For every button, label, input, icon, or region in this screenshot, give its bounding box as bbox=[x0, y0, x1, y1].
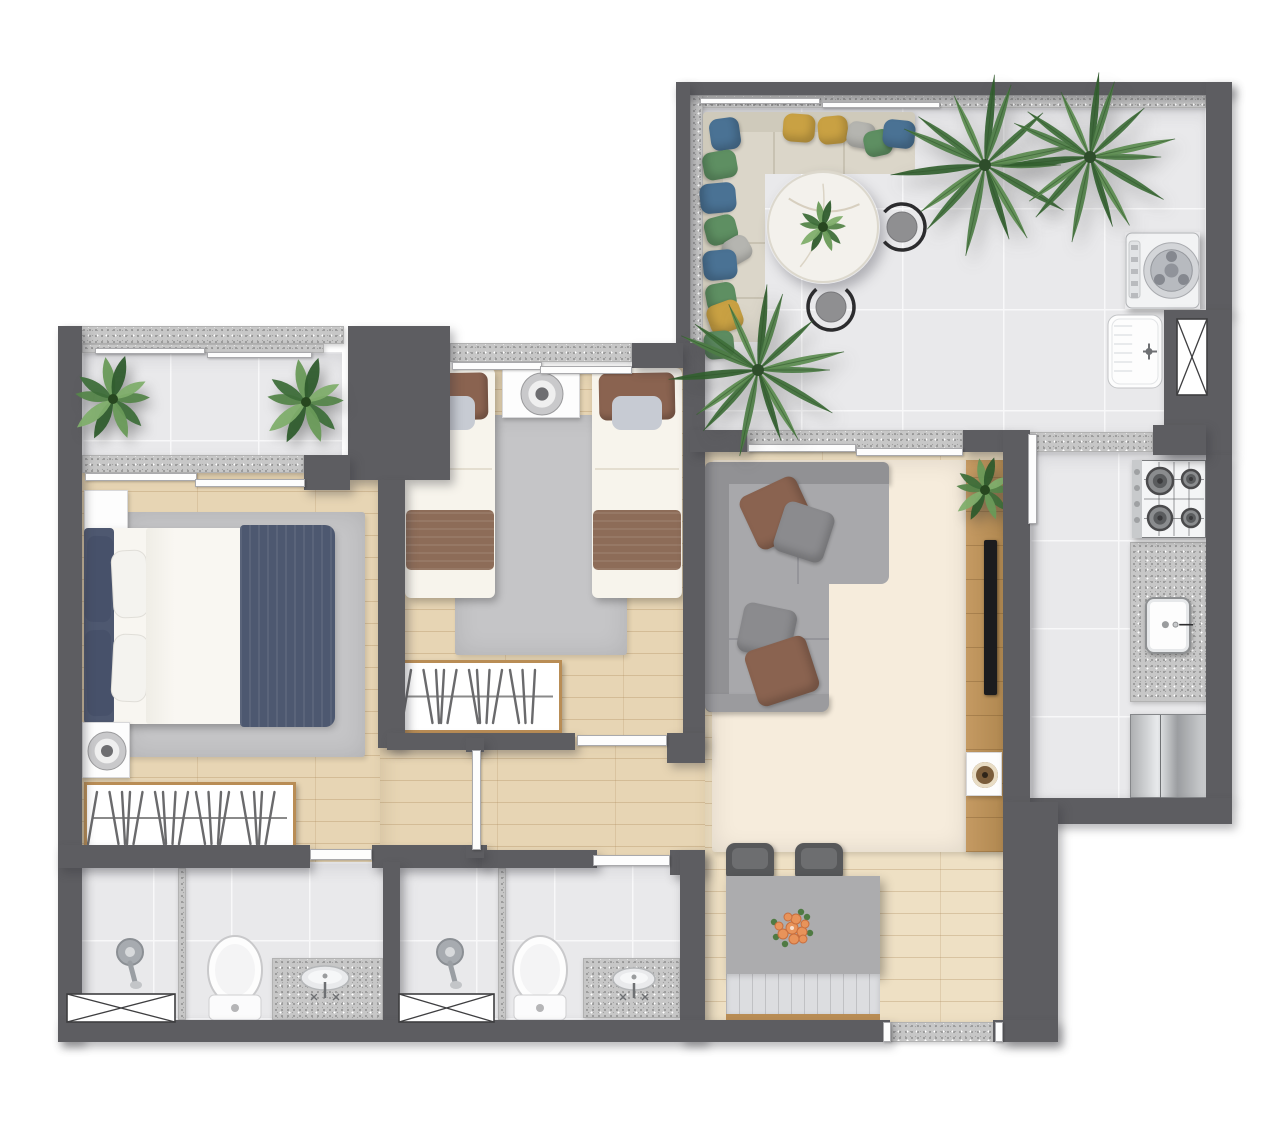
kitchen-door-wall bbox=[1153, 425, 1206, 455]
master-sheet bbox=[146, 528, 242, 724]
washing-machine-part-part bbox=[1131, 281, 1138, 286]
sink-2 bbox=[608, 964, 660, 1002]
hallway-floor bbox=[380, 737, 705, 862]
dining-chair-2-cushion bbox=[801, 848, 837, 869]
laundry-tub bbox=[1107, 314, 1163, 389]
dining-flowers-part-part-part bbox=[778, 929, 788, 939]
master-wardrobe-hangers bbox=[87, 785, 293, 851]
twin-wall-bottom-corner bbox=[667, 733, 705, 763]
terrace-wall-right bbox=[1206, 82, 1232, 314]
sink-1-part-part bbox=[323, 974, 328, 979]
shower-1-part-part bbox=[130, 963, 135, 982]
shaft-xbox-part bbox=[1176, 318, 1208, 396]
master-pillow-white-1 bbox=[110, 549, 150, 619]
twin-wardrobe-hangers-part-part bbox=[532, 670, 535, 723]
stove-part bbox=[1132, 460, 1206, 538]
twin-bed-2-blanket bbox=[593, 510, 681, 570]
master-wardrobe-hangers-part-part bbox=[127, 792, 130, 844]
balcony-window-2 bbox=[195, 479, 305, 487]
sink-1-part bbox=[296, 962, 354, 1002]
balcony-plant-left bbox=[68, 353, 158, 445]
kitchen-wall-bottom bbox=[1030, 798, 1232, 824]
bottom-wall bbox=[58, 1020, 890, 1042]
terrace-palm-1-part-part-part bbox=[979, 159, 991, 171]
master-window-wall bbox=[304, 455, 350, 490]
stove-part-part bbox=[1157, 515, 1162, 520]
master-pillow-white-2 bbox=[110, 633, 150, 703]
master-pillow-navy-1 bbox=[85, 536, 114, 623]
table-centerpiece-plant-part-part-part bbox=[818, 222, 828, 232]
bath2-xbox bbox=[398, 993, 495, 1023]
shower-2-part-part bbox=[450, 963, 455, 982]
shower-2 bbox=[433, 936, 467, 992]
dining-flowers-part-part-part bbox=[801, 920, 809, 928]
balcony-plant-right-part-part bbox=[265, 356, 344, 445]
terrace-palm-3-part bbox=[668, 280, 848, 460]
kitchen-door-threshold bbox=[1028, 432, 1153, 452]
sink-2-part-part bbox=[632, 975, 637, 980]
fan-dial-part-part bbox=[101, 745, 113, 757]
terrace-palm-3-part-part bbox=[668, 284, 845, 457]
dining-wall-right bbox=[1003, 802, 1058, 1042]
sofa-chaise-back bbox=[705, 462, 889, 484]
shower-1 bbox=[113, 936, 147, 992]
kitchen-sink bbox=[1145, 597, 1191, 654]
stove-part-part bbox=[1134, 517, 1140, 523]
dining-chair-1 bbox=[726, 843, 774, 878]
twin-nightstand bbox=[502, 368, 580, 418]
twin-bed-2-pillow-gray bbox=[612, 396, 662, 430]
dining-flowers-part-part-part bbox=[804, 914, 810, 920]
toilet-2 bbox=[509, 934, 571, 1022]
entry-threshold bbox=[890, 1022, 996, 1042]
kitchen-sink-part-part bbox=[1162, 621, 1169, 628]
toilet-2-part-part bbox=[520, 944, 560, 996]
bath-dining-wall bbox=[680, 850, 705, 1042]
shower-2-part bbox=[433, 936, 467, 992]
console-speaker bbox=[966, 752, 1002, 796]
twin-bed-2-sheet-line bbox=[595, 468, 679, 470]
dining-flowers-part-part-part bbox=[790, 926, 794, 930]
fridge bbox=[1130, 714, 1207, 798]
dining-flowers bbox=[760, 896, 824, 960]
master-fan bbox=[82, 722, 130, 778]
dining-bench bbox=[726, 974, 880, 1021]
twin-wardrobe-hangers-part-part bbox=[523, 670, 526, 723]
shower-1-part-part bbox=[125, 947, 135, 957]
floor-plan-canvas bbox=[0, 0, 1280, 1130]
master-wardrobe-hangers-part-part bbox=[173, 792, 176, 844]
twin-wardrobe-hangers bbox=[401, 663, 559, 730]
master-bed bbox=[84, 528, 332, 724]
terrace-pillow-8 bbox=[699, 181, 737, 214]
fan-dial-part bbox=[87, 731, 127, 771]
balcony-window-1 bbox=[85, 473, 197, 481]
washing-machine-part-part bbox=[1166, 251, 1177, 262]
fridge-seam bbox=[1160, 715, 1161, 799]
twin-wardrobe-hangers-part bbox=[401, 663, 559, 730]
sink-2-part bbox=[608, 964, 660, 1002]
toilet-1-part-part bbox=[215, 944, 255, 996]
twin-wardrobe-hangers-part-part bbox=[436, 670, 439, 723]
twin-nightstand-dial-part bbox=[520, 372, 564, 416]
washing-machine-part-part bbox=[1131, 269, 1138, 274]
tv bbox=[984, 540, 997, 695]
kitchen-door-leaf bbox=[1028, 434, 1037, 524]
terrace-palm-2-part-part bbox=[1001, 72, 1176, 243]
stove-part-part bbox=[1189, 516, 1193, 520]
master-wardrobe-hangers-part-part bbox=[122, 792, 125, 844]
master-pillow-navy-2 bbox=[85, 630, 114, 717]
master-wall-bottom bbox=[58, 845, 310, 868]
terrace-pillow-11 bbox=[702, 249, 738, 282]
stove bbox=[1132, 460, 1206, 538]
kitchen-wall-right bbox=[1206, 455, 1232, 800]
dining-flowers-part-part-part bbox=[782, 941, 788, 947]
sink-1 bbox=[296, 962, 354, 1002]
dining-chair-2 bbox=[795, 843, 843, 878]
master-wardrobe-hangers-part bbox=[87, 785, 293, 851]
terrace-pillow-1 bbox=[708, 116, 742, 152]
twin-window-2 bbox=[540, 366, 632, 374]
master-wardrobe bbox=[84, 782, 296, 854]
terrace-pillow-3 bbox=[817, 115, 849, 146]
terrace-palm-2-part-part-part bbox=[1084, 151, 1096, 163]
balcony-parapet bbox=[62, 326, 344, 344]
terrace-rail-1 bbox=[700, 98, 820, 104]
toilet-1-part bbox=[204, 934, 266, 1022]
twin-door-leaf bbox=[577, 735, 667, 746]
table-centerpiece-plant-part-part bbox=[798, 199, 846, 253]
balcony-wall-block bbox=[348, 326, 450, 480]
twin-wardrobe-hangers-part-part bbox=[441, 670, 444, 723]
dining-flowers-part-part-part bbox=[807, 930, 813, 936]
console-plant-part-part-part bbox=[980, 485, 990, 495]
table-centerpiece-plant-part bbox=[795, 199, 851, 255]
dining-flowers-part bbox=[760, 896, 824, 960]
bath1-xbox bbox=[66, 993, 176, 1023]
stove-part-part bbox=[1157, 478, 1163, 484]
laundry-tub-part bbox=[1107, 314, 1163, 389]
master-blanket bbox=[240, 525, 335, 727]
dining-chair-1-cushion bbox=[732, 848, 768, 869]
kitchen-sink-part bbox=[1147, 599, 1193, 656]
washing-machine-part-part bbox=[1131, 257, 1138, 262]
bath2-xbox-part bbox=[398, 993, 495, 1023]
toilet-2-part bbox=[509, 934, 571, 1022]
balcony-plant-right-part-part-part bbox=[301, 397, 311, 407]
balcony-plant-right-part bbox=[260, 356, 352, 448]
washing-machine-part-part bbox=[1131, 293, 1138, 298]
stove-part-part bbox=[1134, 469, 1140, 475]
twin-window-1 bbox=[452, 362, 542, 370]
shower-1-part-part bbox=[130, 981, 142, 989]
washing-machine-part-part bbox=[1154, 274, 1165, 285]
toilet-1 bbox=[204, 934, 266, 1022]
sofa-back-left bbox=[705, 484, 729, 712]
twin-nightstand-dial bbox=[520, 372, 564, 416]
entry-frame-left bbox=[883, 1022, 891, 1042]
speaker-cone bbox=[972, 762, 998, 788]
living-window-2 bbox=[856, 448, 963, 456]
terrace-palm-2 bbox=[1000, 68, 1180, 246]
stove-part-part bbox=[1189, 477, 1193, 481]
balcony-plant-left-part bbox=[68, 353, 158, 445]
washing-machine-part-part bbox=[1165, 264, 1179, 278]
washing-machine-part-part bbox=[1178, 274, 1189, 285]
terrace-pillow-2 bbox=[782, 113, 816, 143]
kitchen-sink-part-part bbox=[1173, 622, 1178, 627]
bath2-door-leaf bbox=[593, 855, 670, 866]
terrace-palm-3-part-part-part bbox=[752, 364, 764, 376]
entry-frame-right bbox=[995, 1022, 1003, 1042]
terrace-palm-2-part bbox=[1000, 68, 1180, 246]
dining-flowers-part-part-part bbox=[798, 909, 804, 915]
bench-seat bbox=[726, 974, 880, 1014]
stove-part-part bbox=[1134, 485, 1140, 491]
dining-flowers-part-part-part bbox=[791, 914, 801, 924]
bath1-xbox-part bbox=[66, 993, 176, 1023]
hall-partition bbox=[472, 750, 481, 850]
master-bath-door-leaf bbox=[310, 849, 372, 860]
table-centerpiece-plant bbox=[795, 199, 851, 255]
terrace-palm-3 bbox=[668, 280, 848, 460]
shower-2-part-part bbox=[445, 947, 455, 957]
terrace-sofa-split-1 bbox=[773, 132, 775, 174]
twin-nightstand-dial-part-part bbox=[535, 387, 548, 400]
balcony-plant-left-part-part bbox=[73, 354, 150, 441]
toilet-2-part-part bbox=[536, 1004, 544, 1012]
dining-flowers-part-part bbox=[771, 909, 813, 947]
master-wardrobe-hangers-part-part bbox=[259, 792, 262, 844]
shaft-xbox bbox=[1176, 318, 1208, 396]
master-wardrobe-hangers-part-part bbox=[209, 792, 212, 844]
hall-wall-2 bbox=[482, 850, 597, 868]
dining-flowers-part-part-part bbox=[799, 935, 807, 943]
twin-wardrobe bbox=[398, 660, 562, 733]
living-window-wall-right bbox=[963, 430, 1005, 452]
balcony-window-sill bbox=[82, 455, 304, 473]
fan-dial bbox=[87, 731, 127, 771]
terrace-table bbox=[766, 170, 880, 284]
toilet-1-part-part bbox=[231, 1004, 239, 1012]
shower-1-part bbox=[113, 936, 147, 992]
balcony-plant-left-part-part-part bbox=[108, 394, 118, 404]
shower-2-divider bbox=[498, 868, 506, 1020]
tv-wall bbox=[1003, 430, 1030, 802]
speaker-dot bbox=[982, 772, 988, 778]
shower-2-part-part bbox=[450, 981, 462, 989]
bedrooms-divider-wall bbox=[378, 480, 405, 748]
shower-1-divider bbox=[178, 868, 186, 1020]
balcony-plant-right bbox=[260, 356, 352, 448]
dining-flowers-part-part-part bbox=[789, 934, 799, 944]
twin-wardrobe-hangers-part-part bbox=[487, 670, 490, 723]
twin-bed-1-blanket bbox=[406, 510, 494, 570]
dining-flowers-part-part-part bbox=[784, 913, 792, 921]
master-wardrobe-hangers-part-part bbox=[254, 792, 257, 844]
dining-flowers-part-part-part bbox=[775, 922, 783, 930]
stove-part-part bbox=[1134, 501, 1140, 507]
twin-window-sill bbox=[450, 343, 632, 362]
